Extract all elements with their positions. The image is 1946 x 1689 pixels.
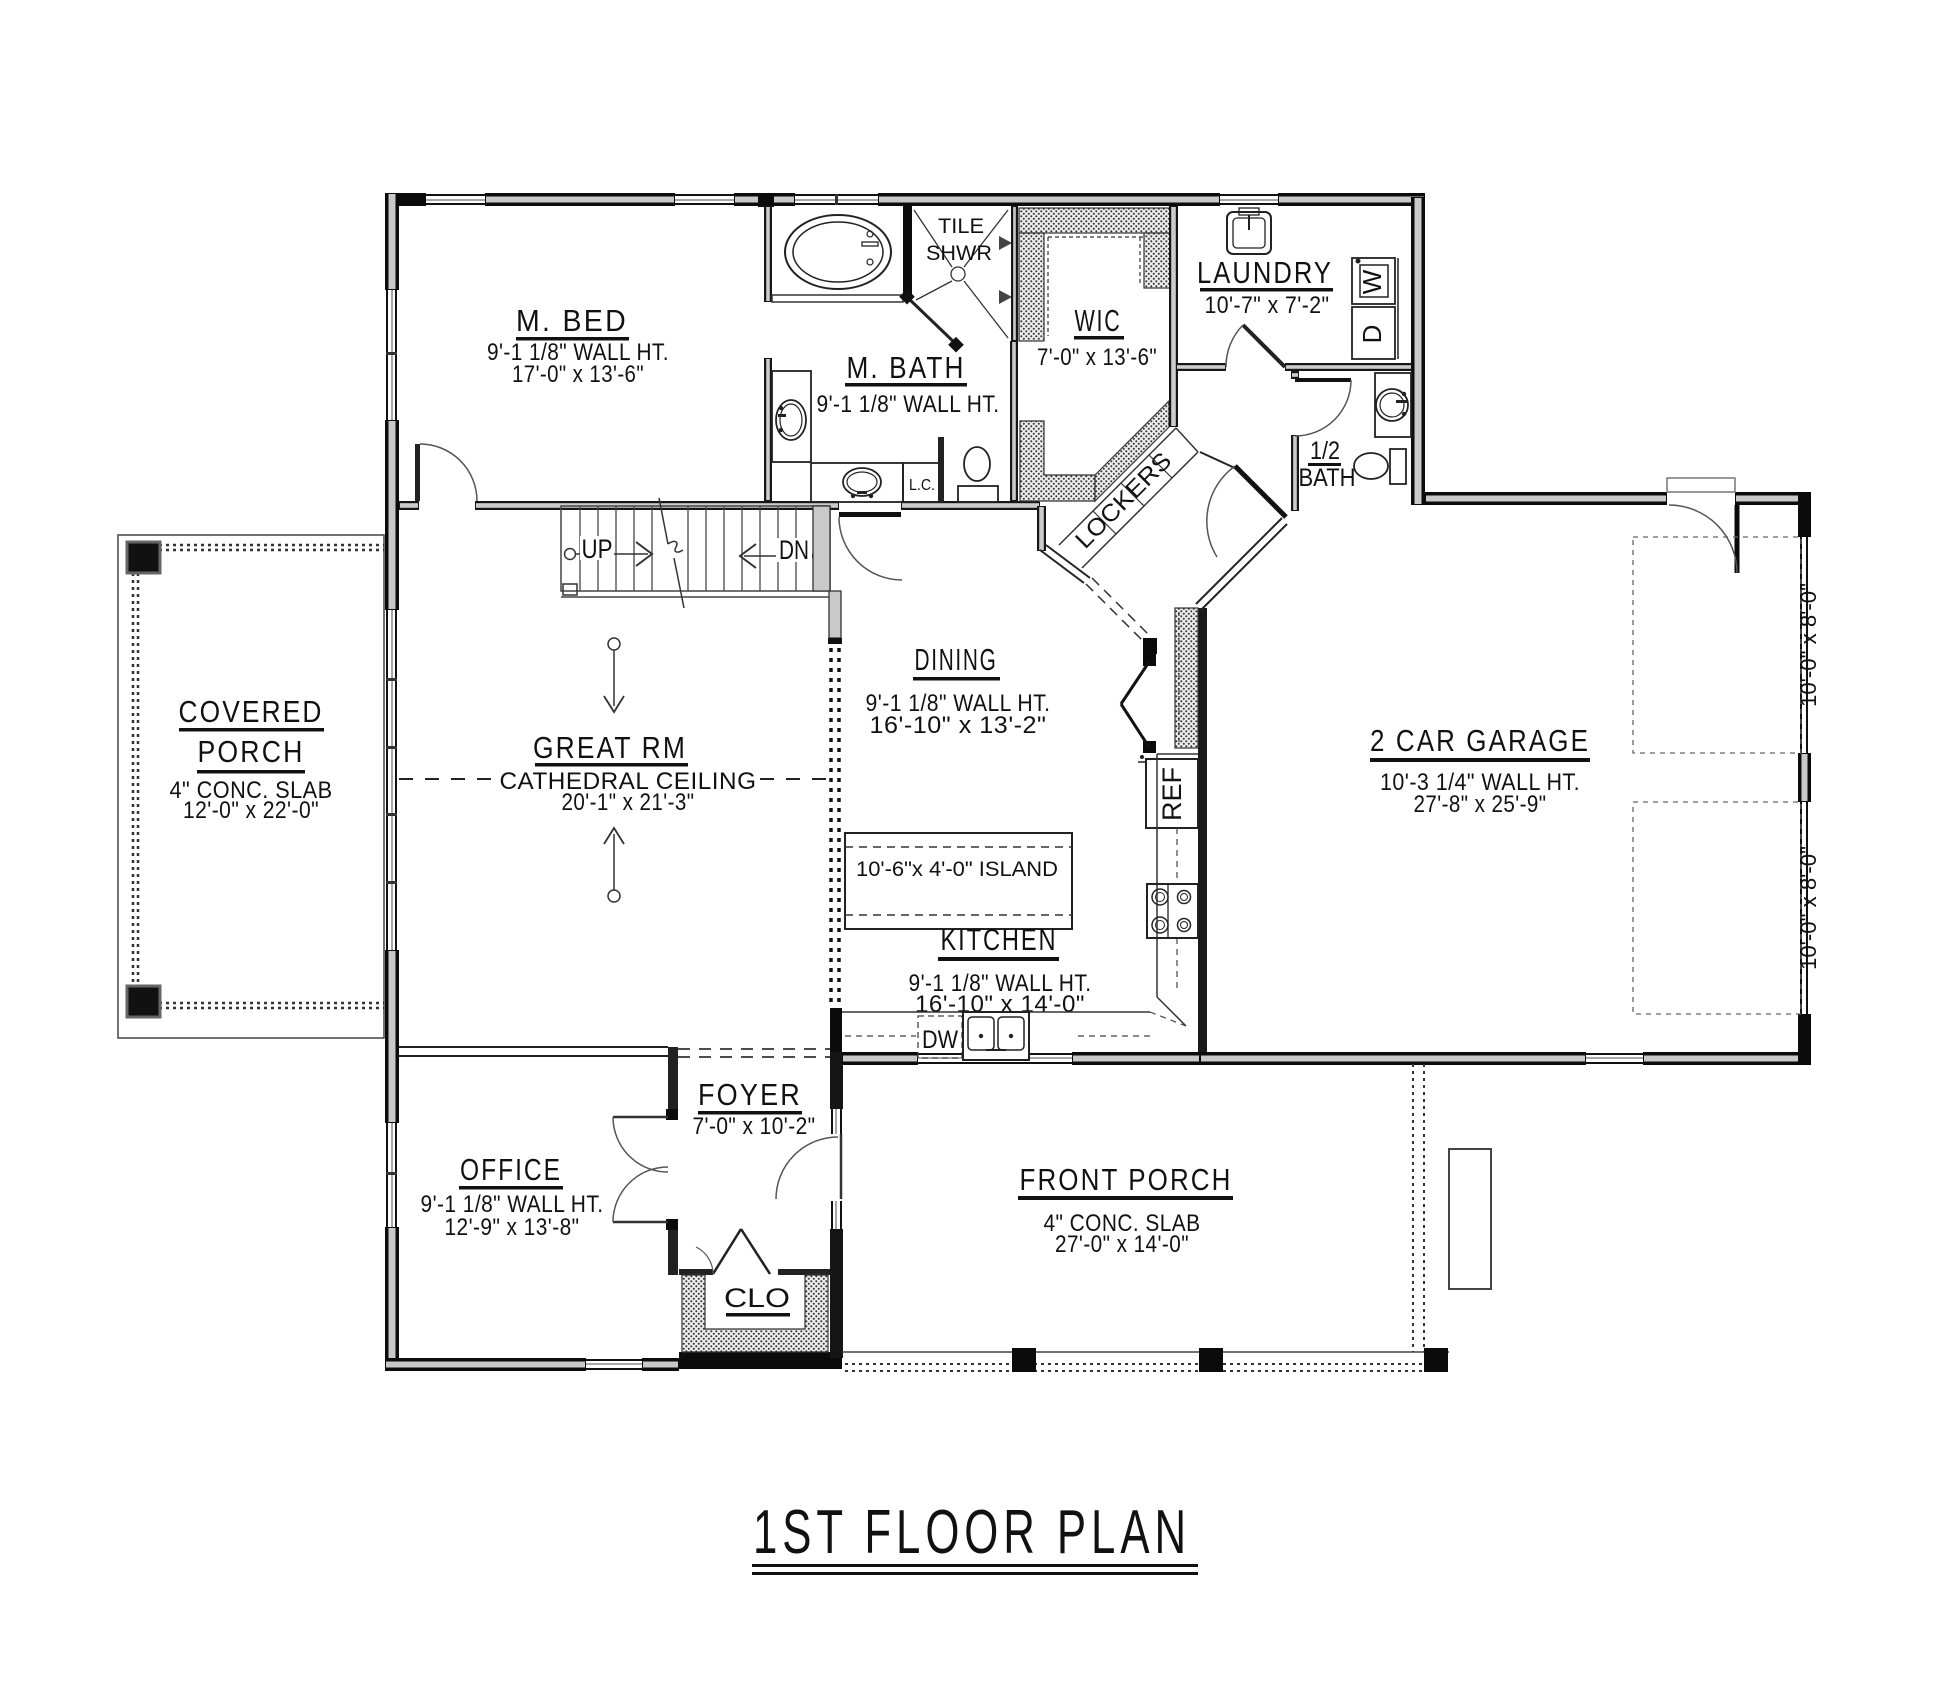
- svg-text:COVERED: COVERED: [179, 694, 324, 729]
- svg-text:PORCH: PORCH: [198, 734, 305, 769]
- svg-text:WIC: WIC: [1075, 303, 1122, 338]
- svg-text:7'-0" x 10'-2": 7'-0" x 10'-2": [693, 1113, 816, 1140]
- svg-text:CLO: CLO: [724, 1283, 790, 1313]
- svg-text:BATH: BATH: [1299, 464, 1356, 492]
- svg-text:TILE: TILE: [938, 215, 984, 238]
- svg-text:M. BATH: M. BATH: [847, 350, 966, 385]
- svg-text:M. BED: M. BED: [516, 303, 628, 338]
- svg-text:SHWR: SHWR: [926, 242, 992, 265]
- svg-text:16'-10" x 13'-2": 16'-10" x 13'-2": [870, 712, 1047, 739]
- svg-text:FRONT PORCH: FRONT PORCH: [1020, 1162, 1233, 1197]
- svg-text:10'-6"x 4'-0" ISLAND: 10'-6"x 4'-0" ISLAND: [856, 858, 1058, 881]
- svg-text:10'-7" x 7'-2": 10'-7" x 7'-2": [1205, 292, 1330, 319]
- svg-text:REF: REF: [1157, 767, 1187, 821]
- svg-text:1/2: 1/2: [1310, 437, 1340, 465]
- svg-text:LAUNDRY: LAUNDRY: [1197, 255, 1333, 290]
- svg-text:DW: DW: [922, 1026, 958, 1054]
- svg-text:GREAT RM: GREAT RM: [533, 730, 687, 765]
- svg-text:7'-0" x 13'-6": 7'-0" x 13'-6": [1037, 344, 1157, 371]
- svg-text:20'-1" x 21'-3": 20'-1" x 21'-3": [562, 789, 695, 816]
- svg-text:12'-9" x 13'-8": 12'-9" x 13'-8": [445, 1214, 580, 1241]
- svg-text:UP: UP: [582, 534, 613, 564]
- svg-text:KITCHEN: KITCHEN: [941, 922, 1058, 957]
- svg-text:L.C.: L.C.: [909, 477, 935, 494]
- svg-text:9'-1 1/8" WALL HT.: 9'-1 1/8" WALL HT.: [817, 391, 1000, 418]
- svg-text:27'-8" x 25'-9": 27'-8" x 25'-9": [1414, 791, 1547, 818]
- svg-text:27'-0" x 14'-0": 27'-0" x 14'-0": [1055, 1231, 1189, 1258]
- svg-text:OFFICE: OFFICE: [460, 1152, 562, 1187]
- svg-text:17'-0" x 13'-6": 17'-0" x 13'-6": [512, 361, 644, 388]
- svg-text:DN: DN: [779, 535, 809, 565]
- svg-text:FOYER: FOYER: [698, 1077, 802, 1112]
- svg-text:10'-0" x 8'-0": 10'-0" x 8'-0": [1796, 846, 1821, 970]
- svg-text:W: W: [1357, 269, 1387, 294]
- svg-text:DINING: DINING: [915, 642, 998, 677]
- svg-text:10'-0" x 8'-0": 10'-0" x 8'-0": [1796, 583, 1821, 707]
- svg-text:12'-0" x 22'-0": 12'-0" x 22'-0": [183, 797, 319, 824]
- svg-text:2 CAR GARAGE: 2 CAR GARAGE: [1370, 723, 1590, 758]
- svg-text:1ST FLOOR PLAN: 1ST FLOOR PLAN: [753, 1498, 1191, 1567]
- svg-text:D: D: [1357, 325, 1387, 344]
